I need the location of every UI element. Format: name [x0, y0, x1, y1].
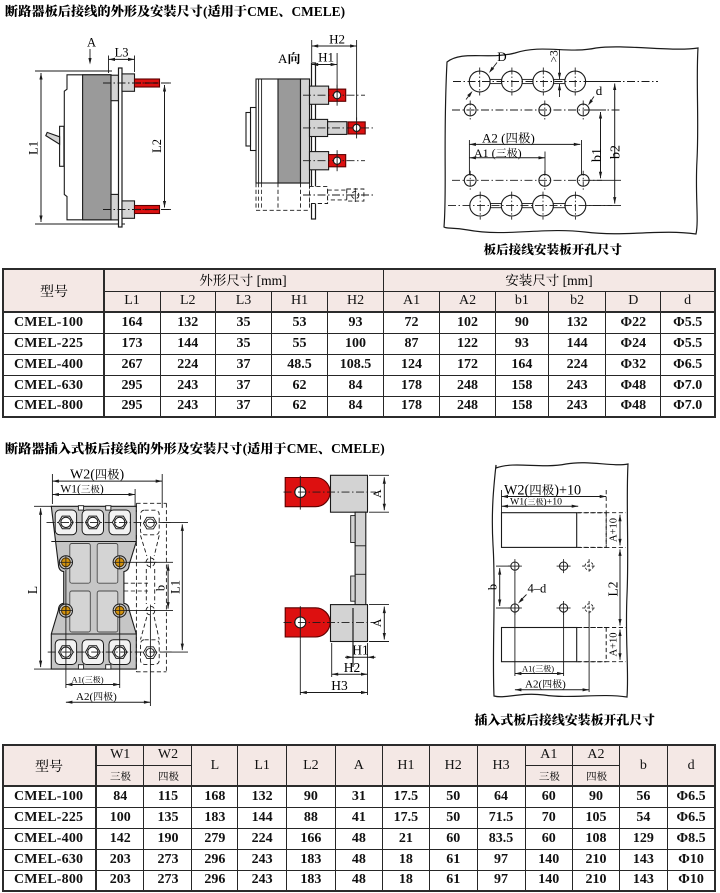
- svg-text:[mm]: [mm]: [253, 273, 286, 288]
- svg-text:[mm]: [mm]: [559, 273, 592, 288]
